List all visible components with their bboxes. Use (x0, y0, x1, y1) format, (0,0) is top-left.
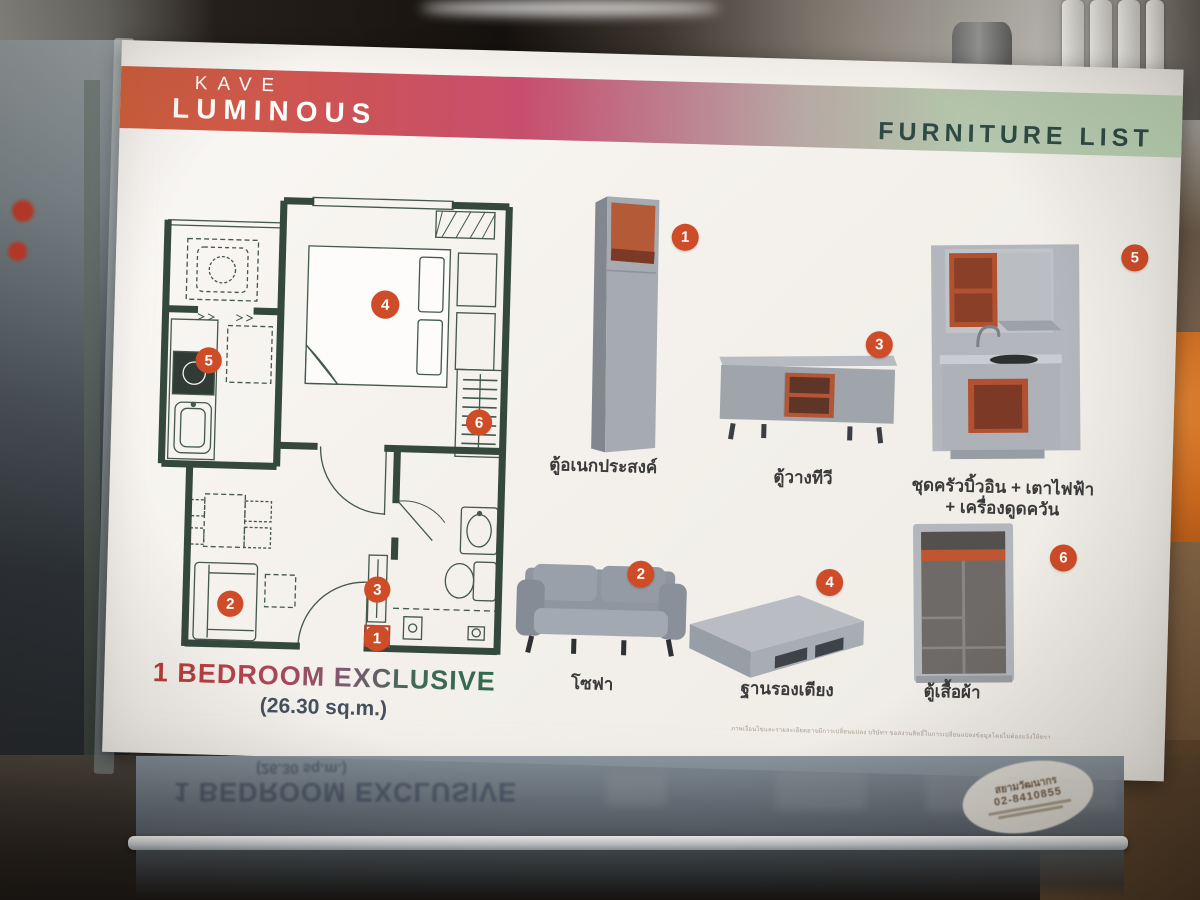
page-title: FURNITURE LIST (878, 117, 1154, 154)
furniture-badge-1: 1 (671, 223, 699, 251)
furniture-label-2: โซฟา (502, 671, 683, 697)
plan-marker-5: 5 (204, 352, 213, 369)
ceiling-light-reflection (420, 0, 720, 16)
furniture-label-4: ฐานรองเตียง (692, 676, 883, 703)
furniture-list-card: KAVE LUMINOUS FURNITURE LIST (102, 40, 1183, 781)
badge-number: 6 (1059, 549, 1068, 566)
red-sticker-dot (12, 200, 34, 222)
red-sticker-dot (8, 242, 27, 261)
furniture-badge-6: 6 (1050, 544, 1078, 572)
furniture-label-1: ตู้อเนกประสงค์ (508, 453, 699, 480)
furniture-label-3: ตู้วางทีวี (708, 465, 899, 492)
reflection-title-text: 1 BEDROOM EXCLUSIVE (174, 776, 517, 807)
plan-marker-1: 1 (372, 630, 381, 647)
furniture-badge-5: 5 (1121, 244, 1149, 272)
brand-luminous: LUMINOUS (172, 93, 378, 128)
plan-marker-2: 2 (226, 596, 235, 613)
furniture-label-6: ตู้เสื้อผ้า (862, 679, 1043, 705)
badge-number: 1 (681, 229, 690, 246)
gradient-header-band: KAVE LUMINOUS FURNITURE LIST (120, 66, 1183, 158)
furniture-label-5: ชุดครัวบิ้วอิน + เตาไฟฟ้า + เครื่องดูดคว… (897, 474, 1108, 522)
badge-number: 4 (825, 574, 834, 591)
plan-marker-3: 3 (373, 582, 382, 599)
floor-plan-drawing: 1 2 3 4 5 6 (147, 189, 516, 659)
kitchen-set-illustration (918, 226, 1093, 469)
bed-base-illustration (678, 584, 873, 687)
badge-number: 2 (636, 566, 645, 583)
fine-print-disclaimer: ภาพเงื่อนไขและรายละเอียดอาจมีการเปลี่ยนแ… (731, 723, 1051, 742)
badge-number: 5 (1130, 249, 1139, 266)
plan-marker-4: 4 (381, 297, 390, 314)
reflection-area-text: (26.30 sq.m.) (256, 760, 347, 777)
reflection-blob (776, 770, 866, 810)
sofa-illustration (509, 551, 694, 664)
wardrobe-illustration (903, 516, 1024, 691)
kave-luminous-logo: KAVE LUMINOUS (172, 73, 379, 128)
reflection-blob (606, 772, 666, 806)
table-reflection-lower (136, 850, 1124, 898)
plan-marker-6: 6 (475, 414, 484, 431)
multipurpose-cabinet-illustration (571, 189, 684, 460)
acrylic-stand-front-edge (128, 836, 1128, 850)
badge-number: 3 (875, 336, 884, 353)
photo-scene: KAVE LUMINOUS FURNITURE LIST (0, 0, 1200, 900)
floor-plan: 1 2 3 4 5 6 (147, 189, 516, 659)
